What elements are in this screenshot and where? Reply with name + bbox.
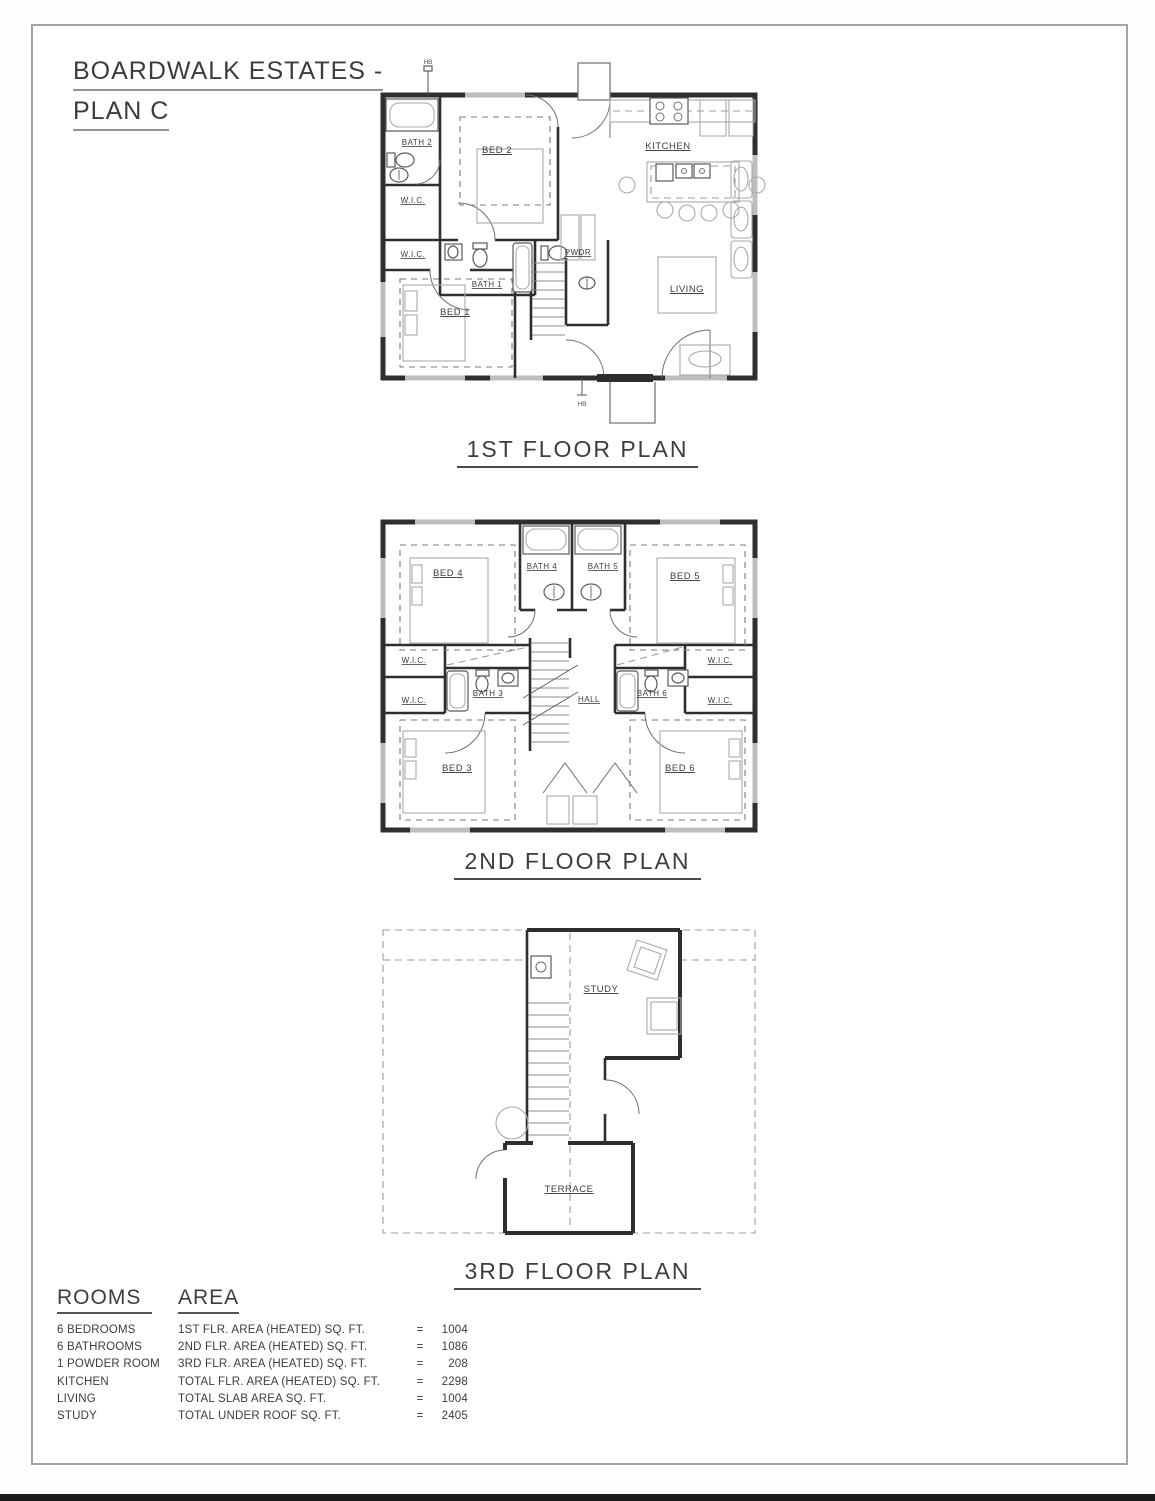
hb-top-label: HB (423, 59, 432, 66)
floor2-bed5 (630, 545, 745, 650)
room-item: STUDY (57, 1408, 178, 1425)
room-label-study: STUDY (584, 984, 619, 995)
first-floor-plan-drawing: HB (375, 57, 770, 427)
room-label-kitchen: KITCHEN (645, 141, 690, 152)
room-label-terrace: TERRACE (545, 1184, 594, 1195)
area-value: 2405 (430, 1408, 468, 1425)
floor3-stairs (528, 956, 569, 1135)
area-label: TOTAL FLR. AREA (HEATED) SQ. FT. (178, 1374, 410, 1391)
room-label-bath5: BATH 5 (588, 562, 618, 571)
floor2-bed4 (400, 545, 515, 650)
floor1-hose-bib-top: HB (423, 59, 432, 95)
room-item: 6 BEDROOMS (57, 1322, 178, 1339)
room-item: KITCHEN (57, 1374, 178, 1391)
floor1-living-furniture (658, 161, 752, 375)
area-value: 1086 (430, 1339, 468, 1356)
room-label-bed1: BED 1 (440, 307, 470, 318)
title-line-2: PLAN C (73, 97, 169, 131)
area-value: 1004 (430, 1322, 468, 1339)
summary-row: 6 BEDROOMS 1ST FLR. AREA (HEATED) SQ. FT… (57, 1322, 468, 1339)
room-label-wic-lb: W.I.C. (402, 696, 427, 705)
area-label: TOTAL UNDER ROOF SQ. FT. (178, 1408, 410, 1425)
room-label-pwdr: PWDR (565, 248, 591, 257)
floor2-stairs (523, 638, 578, 751)
area-header: AREA (178, 1286, 239, 1314)
room-label-hall: HALL (578, 695, 600, 704)
room-label-bed5: BED 5 (670, 571, 700, 582)
second-floor-plan-drawing: BED 4 BATH 4 BATH 5 BED 5 W.I.C. W.I.C. … (375, 513, 770, 843)
area-label: 3RD FLR. AREA (HEATED) SQ. FT. (178, 1356, 410, 1373)
area-value: 208 (430, 1356, 468, 1373)
room-label-bed3: BED 3 (442, 763, 472, 774)
hb-bottom-label: HB (577, 401, 586, 408)
room-label-bath3: BATH 3 (473, 689, 503, 698)
room-label-bath1: BATH 1 (472, 280, 502, 289)
page-title: BOARDWALK ESTATES - PLAN C (73, 57, 383, 137)
floor1-entry (572, 63, 610, 138)
plan-sheet: BOARDWALK ESTATES - PLAN C HB (0, 0, 1155, 1501)
area-label: 1ST FLR. AREA (HEATED) SQ. FT. (178, 1322, 410, 1339)
equals-sign: = (410, 1408, 430, 1425)
room-label-bed2: BED 2 (482, 145, 512, 156)
room-label-bed6: BED 6 (665, 763, 695, 774)
room-label-wic-rt: W.I.C. (708, 656, 733, 665)
room-item: 6 BATHROOMS (57, 1339, 178, 1356)
floor1-bed2 (460, 117, 595, 260)
rooms-header: ROOMS (57, 1286, 152, 1314)
room-label-bed4: BED 4 (433, 568, 463, 579)
floor3-column-circle (496, 1107, 528, 1139)
screenshot-bottom-bar (0, 1494, 1155, 1501)
room-label-wic-b: W.I.C. (401, 250, 426, 259)
equals-sign: = (410, 1356, 430, 1373)
second-floor-caption: 2ND FLOOR PLAN (454, 848, 700, 880)
room-label-bath2: BATH 2 (402, 138, 432, 147)
room-label-wic-lt: W.I.C. (402, 656, 427, 665)
room-label-wic-rb: W.I.C. (708, 696, 733, 705)
title-line-1: BOARDWALK ESTATES - (73, 57, 383, 91)
third-floor-caption: 3RD FLOOR PLAN (454, 1258, 700, 1290)
floor3-study-furniture (627, 940, 681, 1034)
summary-row: 6 BATHROOMS 2ND FLR. AREA (HEATED) SQ. F… (57, 1339, 468, 1356)
floor1-stairs (532, 263, 565, 335)
floor1-kitchen-fixtures (610, 98, 765, 221)
floor1-bed1 (400, 279, 512, 367)
area-label: TOTAL SLAB AREA SQ. FT. (178, 1391, 410, 1408)
floor1-porch (597, 374, 655, 423)
equals-sign: = (410, 1374, 430, 1391)
summary-row: KITCHEN TOTAL FLR. AREA (HEATED) SQ. FT.… (57, 1374, 468, 1391)
equals-sign: = (410, 1339, 430, 1356)
summary-headers: ROOMS AREA (57, 1286, 468, 1314)
room-label-wic-a: W.I.C. (401, 196, 426, 205)
room-item: LIVING (57, 1391, 178, 1408)
area-value: 2298 (430, 1374, 468, 1391)
third-floor-plan-drawing: STUDY TERRACE (375, 918, 770, 1248)
area-label: 2ND FLR. AREA (HEATED) SQ. FT. (178, 1339, 410, 1356)
summary-row: 1 POWDER ROOM 3RD FLR. AREA (HEATED) SQ.… (57, 1356, 468, 1373)
area-value: 1004 (430, 1391, 468, 1408)
floor2-hall-closet (543, 763, 637, 824)
room-label-bath4: BATH 4 (527, 562, 557, 571)
summary-row: LIVING TOTAL SLAB AREA SQ. FT. = 1004 (57, 1391, 468, 1408)
room-label-living: LIVING (670, 284, 704, 295)
summary-row: STUDY TOTAL UNDER ROOF SQ. FT. = 2405 (57, 1408, 468, 1425)
room-item: 1 POWDER ROOM (57, 1356, 178, 1373)
summary-section: ROOMS AREA 6 BEDROOMS 1ST FLR. AREA (HEA… (57, 1286, 468, 1425)
first-floor-caption: 1ST FLOOR PLAN (457, 436, 699, 468)
floor1-hose-bib-bottom: HB (577, 378, 587, 408)
equals-sign: = (410, 1391, 430, 1408)
second-floor-caption-row: 2ND FLOOR PLAN (0, 848, 1155, 880)
floor1-doors (415, 95, 710, 378)
equals-sign: = (410, 1322, 430, 1339)
first-floor-caption-row: 1ST FLOOR PLAN (0, 436, 1155, 468)
room-label-bath6: BATH 6 (637, 689, 667, 698)
